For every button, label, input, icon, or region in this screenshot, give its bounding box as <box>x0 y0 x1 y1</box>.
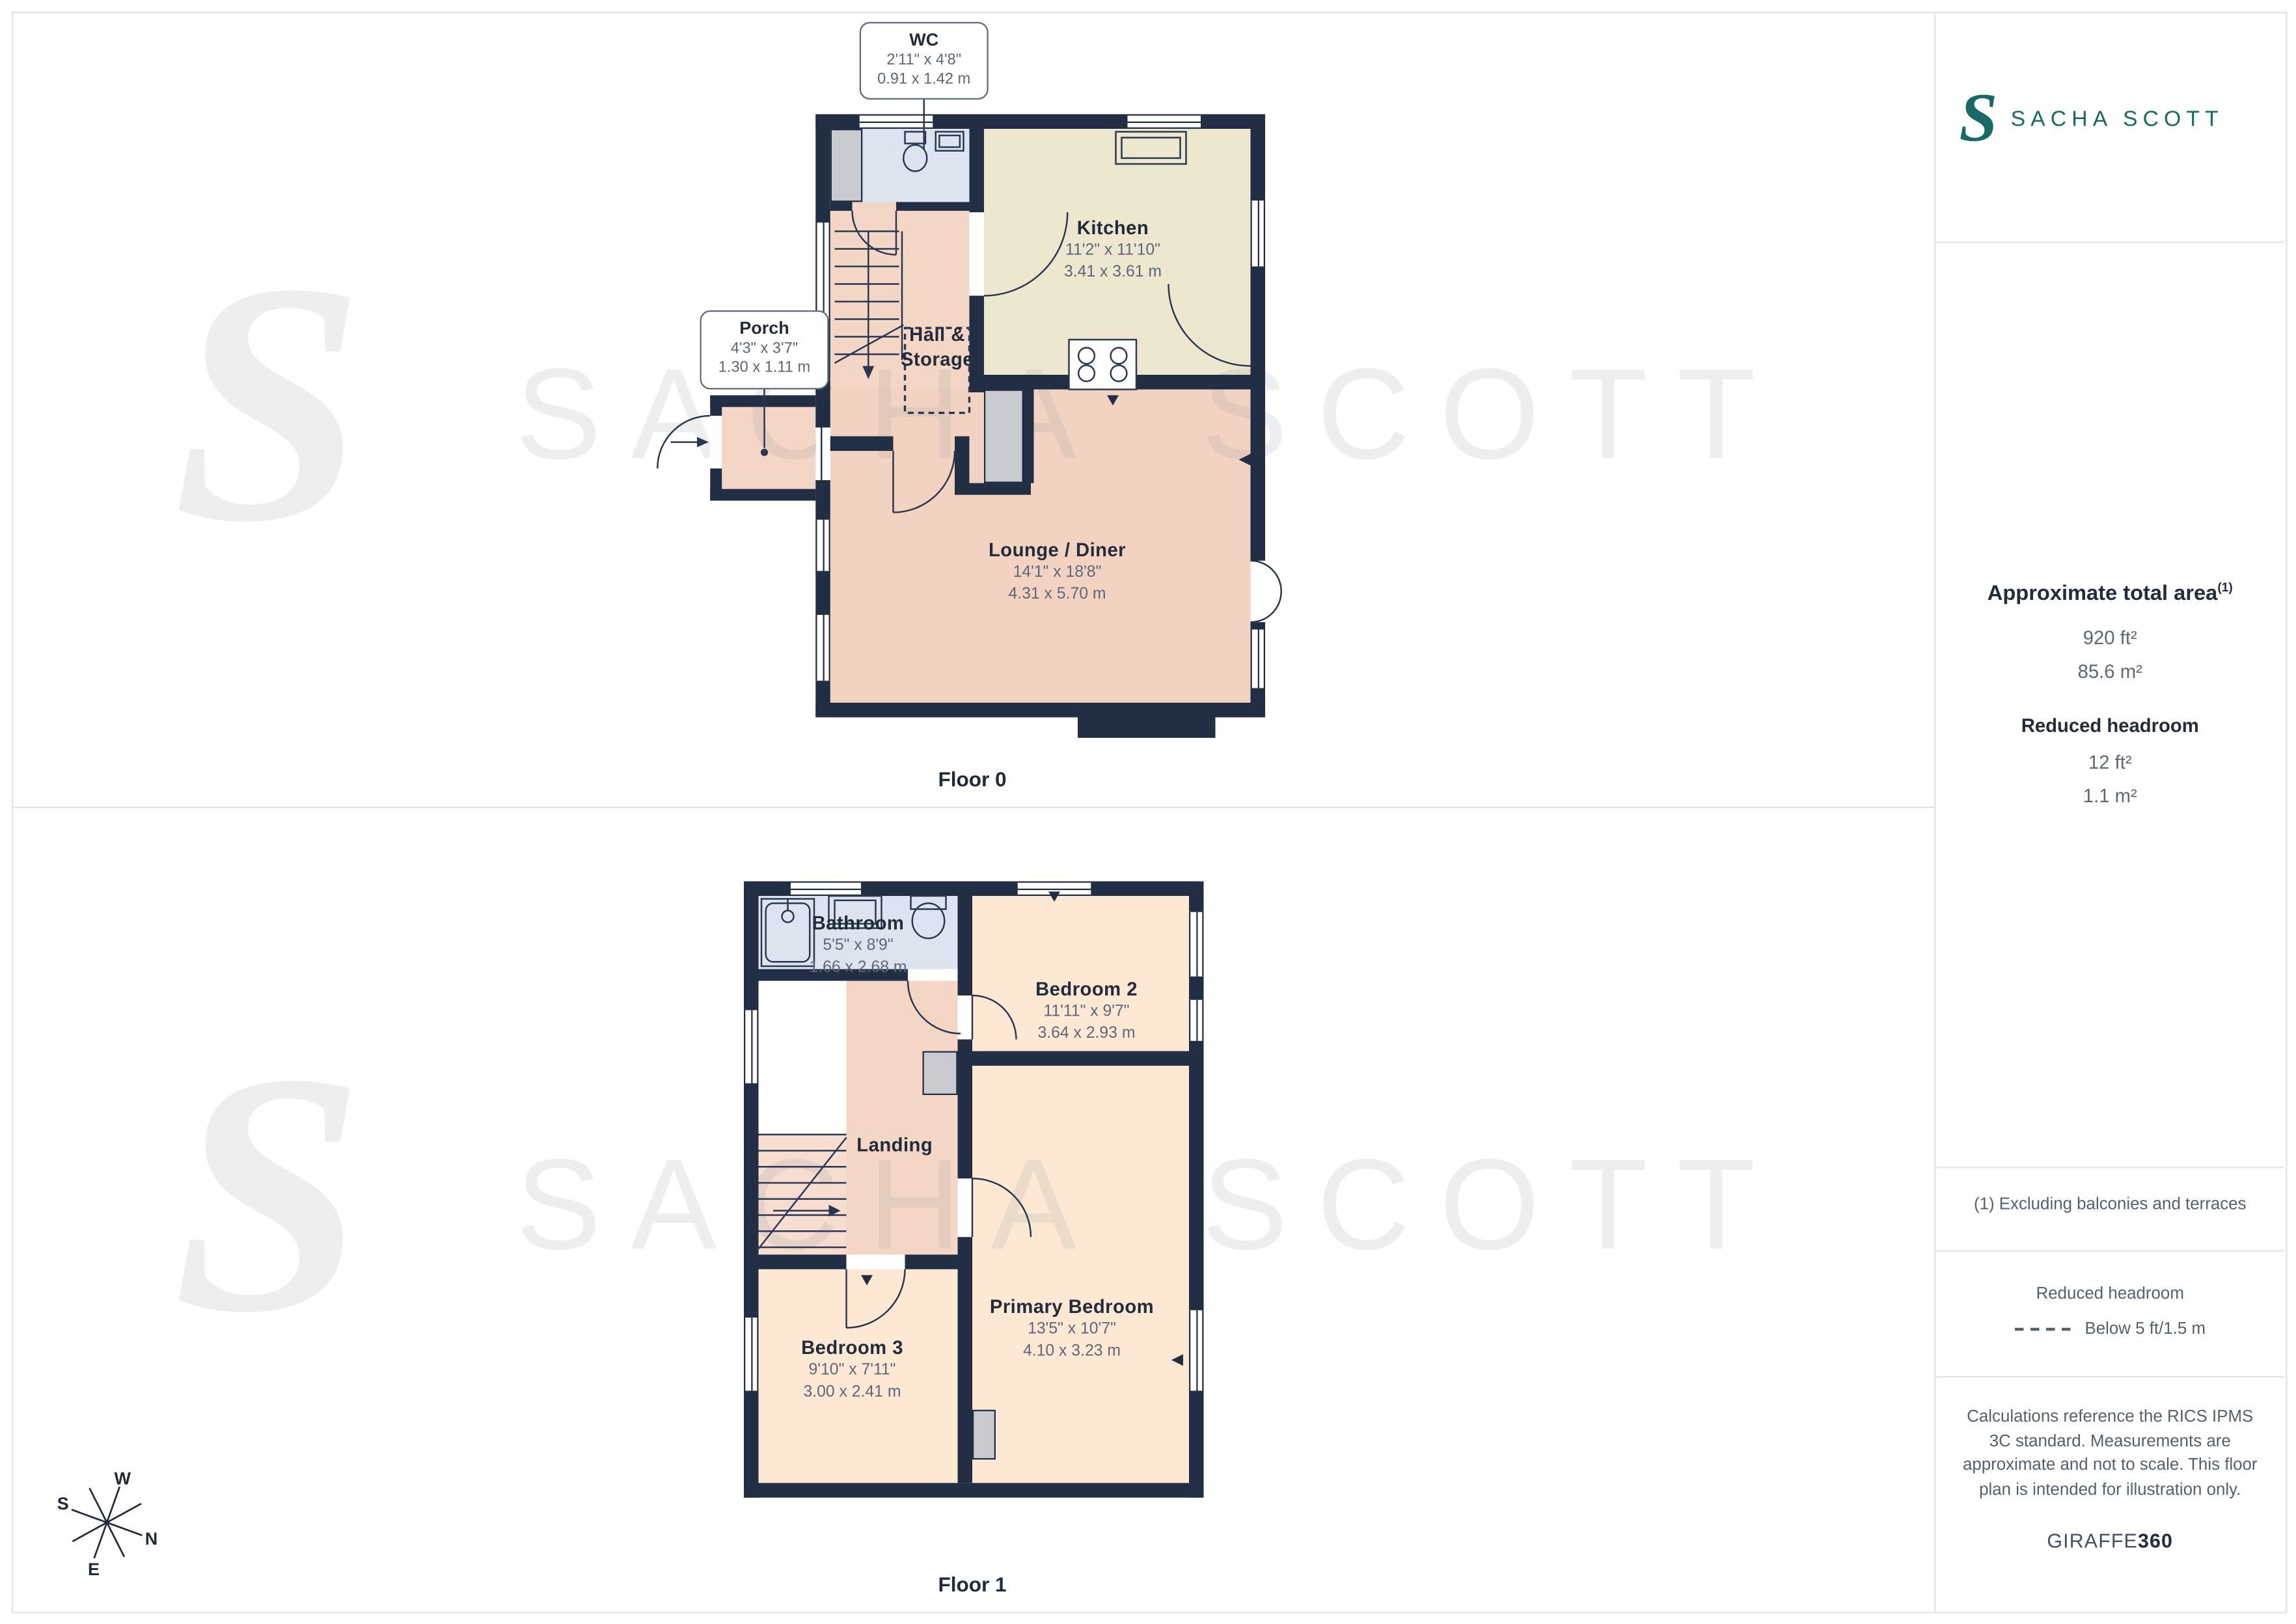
room-name: Porch <box>707 318 822 340</box>
wc-callout: WC 2'11" x 4'8" 0.91 x 1.42 m <box>860 22 989 100</box>
credit-bold: 360 <box>2138 1530 2173 1552</box>
compass: W N E S <box>53 1464 164 1581</box>
room-name: Hall & Storage <box>880 322 994 372</box>
svg-text:E: E <box>88 1560 100 1579</box>
floor0-title: Floor 0 <box>938 767 1006 791</box>
brand-monogram-icon: S <box>1960 88 1998 150</box>
room-dims-imperial: 5'5" x 8'9" <box>810 936 907 957</box>
room-dims-metric: 4.31 x 5.70 m <box>989 584 1126 605</box>
credit-normal: GIRAFFE <box>2047 1530 2138 1552</box>
area-footnote-marker: (1) <box>2217 580 2232 595</box>
giraffe360-credit: GIRAFFE360 <box>1936 1530 2285 1552</box>
sidebar-divider <box>1936 1251 2285 1252</box>
area-ft: 920 ft² <box>1936 627 2285 649</box>
room-dims-metric: 4.10 x 3.23 m <box>990 1340 1154 1362</box>
brand-wordmark: SACHA SCOTT <box>2011 106 2224 131</box>
room-name: Kitchen <box>1064 215 1162 241</box>
sidebar-panel <box>1934 12 2287 1614</box>
dashed-line-swatch <box>2014 1328 2070 1331</box>
floor0-plan: WC 2'11" x 4'8" 0.91 x 1.42 m Porch 4'3"… <box>630 18 1319 757</box>
sidebar-divider <box>1936 1167 2285 1168</box>
room-name: Bathroom <box>810 910 907 936</box>
kitchen-label: Kitchen 11'2" x 11'10" 3.41 x 3.61 m <box>1064 215 1162 283</box>
svg-text:S: S <box>57 1494 69 1513</box>
room-name: Landing <box>856 1132 933 1157</box>
room-dims-imperial: 9'10" x 7'11" <box>801 1360 903 1381</box>
room-dims-metric: 3.41 x 3.61 m <box>1064 262 1162 283</box>
sidebar-divider <box>1936 1376 2285 1377</box>
porch-callout: Porch 4'3" x 3'7" 1.30 x 1.11 m <box>700 310 829 390</box>
area-title: Approximate total area(1) <box>1936 580 2285 606</box>
room-name: Primary Bedroom <box>990 1294 1154 1319</box>
room-name: Bedroom 2 <box>1035 977 1138 1002</box>
room-dims-metric: 3.64 x 2.93 m <box>1035 1023 1138 1044</box>
hall-label: Hall & Storage <box>880 322 994 372</box>
brand-logo: S SACHA SCOTT <box>1960 88 2224 150</box>
room-dims-imperial: 11'11" x 9'7" <box>1035 1001 1138 1023</box>
reduced-m: 1.1 m² <box>1936 785 2285 807</box>
footnote-text: (1) Excluding balconies and terraces <box>1936 1196 2285 1213</box>
legend-title: Reduced headroom <box>1936 1286 2285 1303</box>
room-dims-metric: 1.66 x 2.68 m <box>810 957 907 979</box>
sidebar-divider <box>1936 241 2285 243</box>
bedroom2-label: Bedroom 2 11'11" x 9'7" 3.64 x 2.93 m <box>1035 977 1138 1044</box>
room-name: Bedroom 3 <box>801 1335 903 1360</box>
primary-bedroom-label: Primary Bedroom 13'5" x 10'7" 4.10 x 3.2… <box>990 1294 1154 1362</box>
room-name: WC <box>867 29 981 51</box>
room-dims-imperial: 13'5" x 10'7" <box>990 1319 1154 1340</box>
reduced-headroom-title: Reduced headroom <box>1936 714 2285 737</box>
area-summary: Approximate total area(1) 920 ft² 85.6 m… <box>1936 580 2285 806</box>
floorplan-page: S SACHA SCOTT S SACHA SCOTT <box>0 0 2296 1624</box>
footnote: (1) Excluding balconies and terraces <box>1936 1196 2285 1213</box>
floor1-plan: Bathroom 5'5" x 8'9" 1.66 x 2.68 m Bedro… <box>689 871 1231 1530</box>
floor1-linework <box>689 871 1231 1530</box>
room-dims-metric: 0.91 x 1.42 m <box>867 70 981 90</box>
legend: Reduced headroom Below 5 ft/1.5 m <box>1936 1286 2285 1338</box>
lounge-label: Lounge / Diner 14'1" x 18'8" 4.31 x 5.70… <box>989 537 1126 605</box>
floor1-title: Floor 1 <box>938 1573 1006 1596</box>
area-m: 85.6 m² <box>1936 660 2285 682</box>
room-dims-imperial: 11'2" x 11'10" <box>1064 240 1162 262</box>
room-dims-imperial: 4'3" x 3'7" <box>707 340 822 359</box>
area-title-text: Approximate total area <box>1988 582 2218 606</box>
room-name: Lounge / Diner <box>989 537 1126 563</box>
bedroom3-label: Bedroom 3 9'10" x 7'11" 3.00 x 2.41 m <box>801 1335 903 1403</box>
disclaimer-block: Calculations reference the RICS IPMS 3C … <box>1936 1405 2285 1551</box>
bathroom-label: Bathroom 5'5" x 8'9" 1.66 x 2.68 m <box>810 910 907 978</box>
legend-label: Below 5 ft/1.5 m <box>2084 1321 2206 1338</box>
room-dims-metric: 3.00 x 2.41 m <box>801 1381 903 1403</box>
landing-label: Landing <box>856 1132 933 1157</box>
compass-rose-icon: W N E S <box>53 1464 164 1581</box>
svg-text:N: N <box>145 1529 158 1549</box>
disclaimer-text: Calculations reference the RICS IPMS 3C … <box>1961 1405 2260 1503</box>
room-dims-metric: 1.30 x 1.11 m <box>707 359 822 379</box>
reduced-ft: 12 ft² <box>1936 751 2285 773</box>
room-dims-imperial: 2'11" x 4'8" <box>867 51 981 71</box>
room-dims-imperial: 14'1" x 18'8" <box>989 562 1126 584</box>
svg-text:W: W <box>115 1469 131 1489</box>
